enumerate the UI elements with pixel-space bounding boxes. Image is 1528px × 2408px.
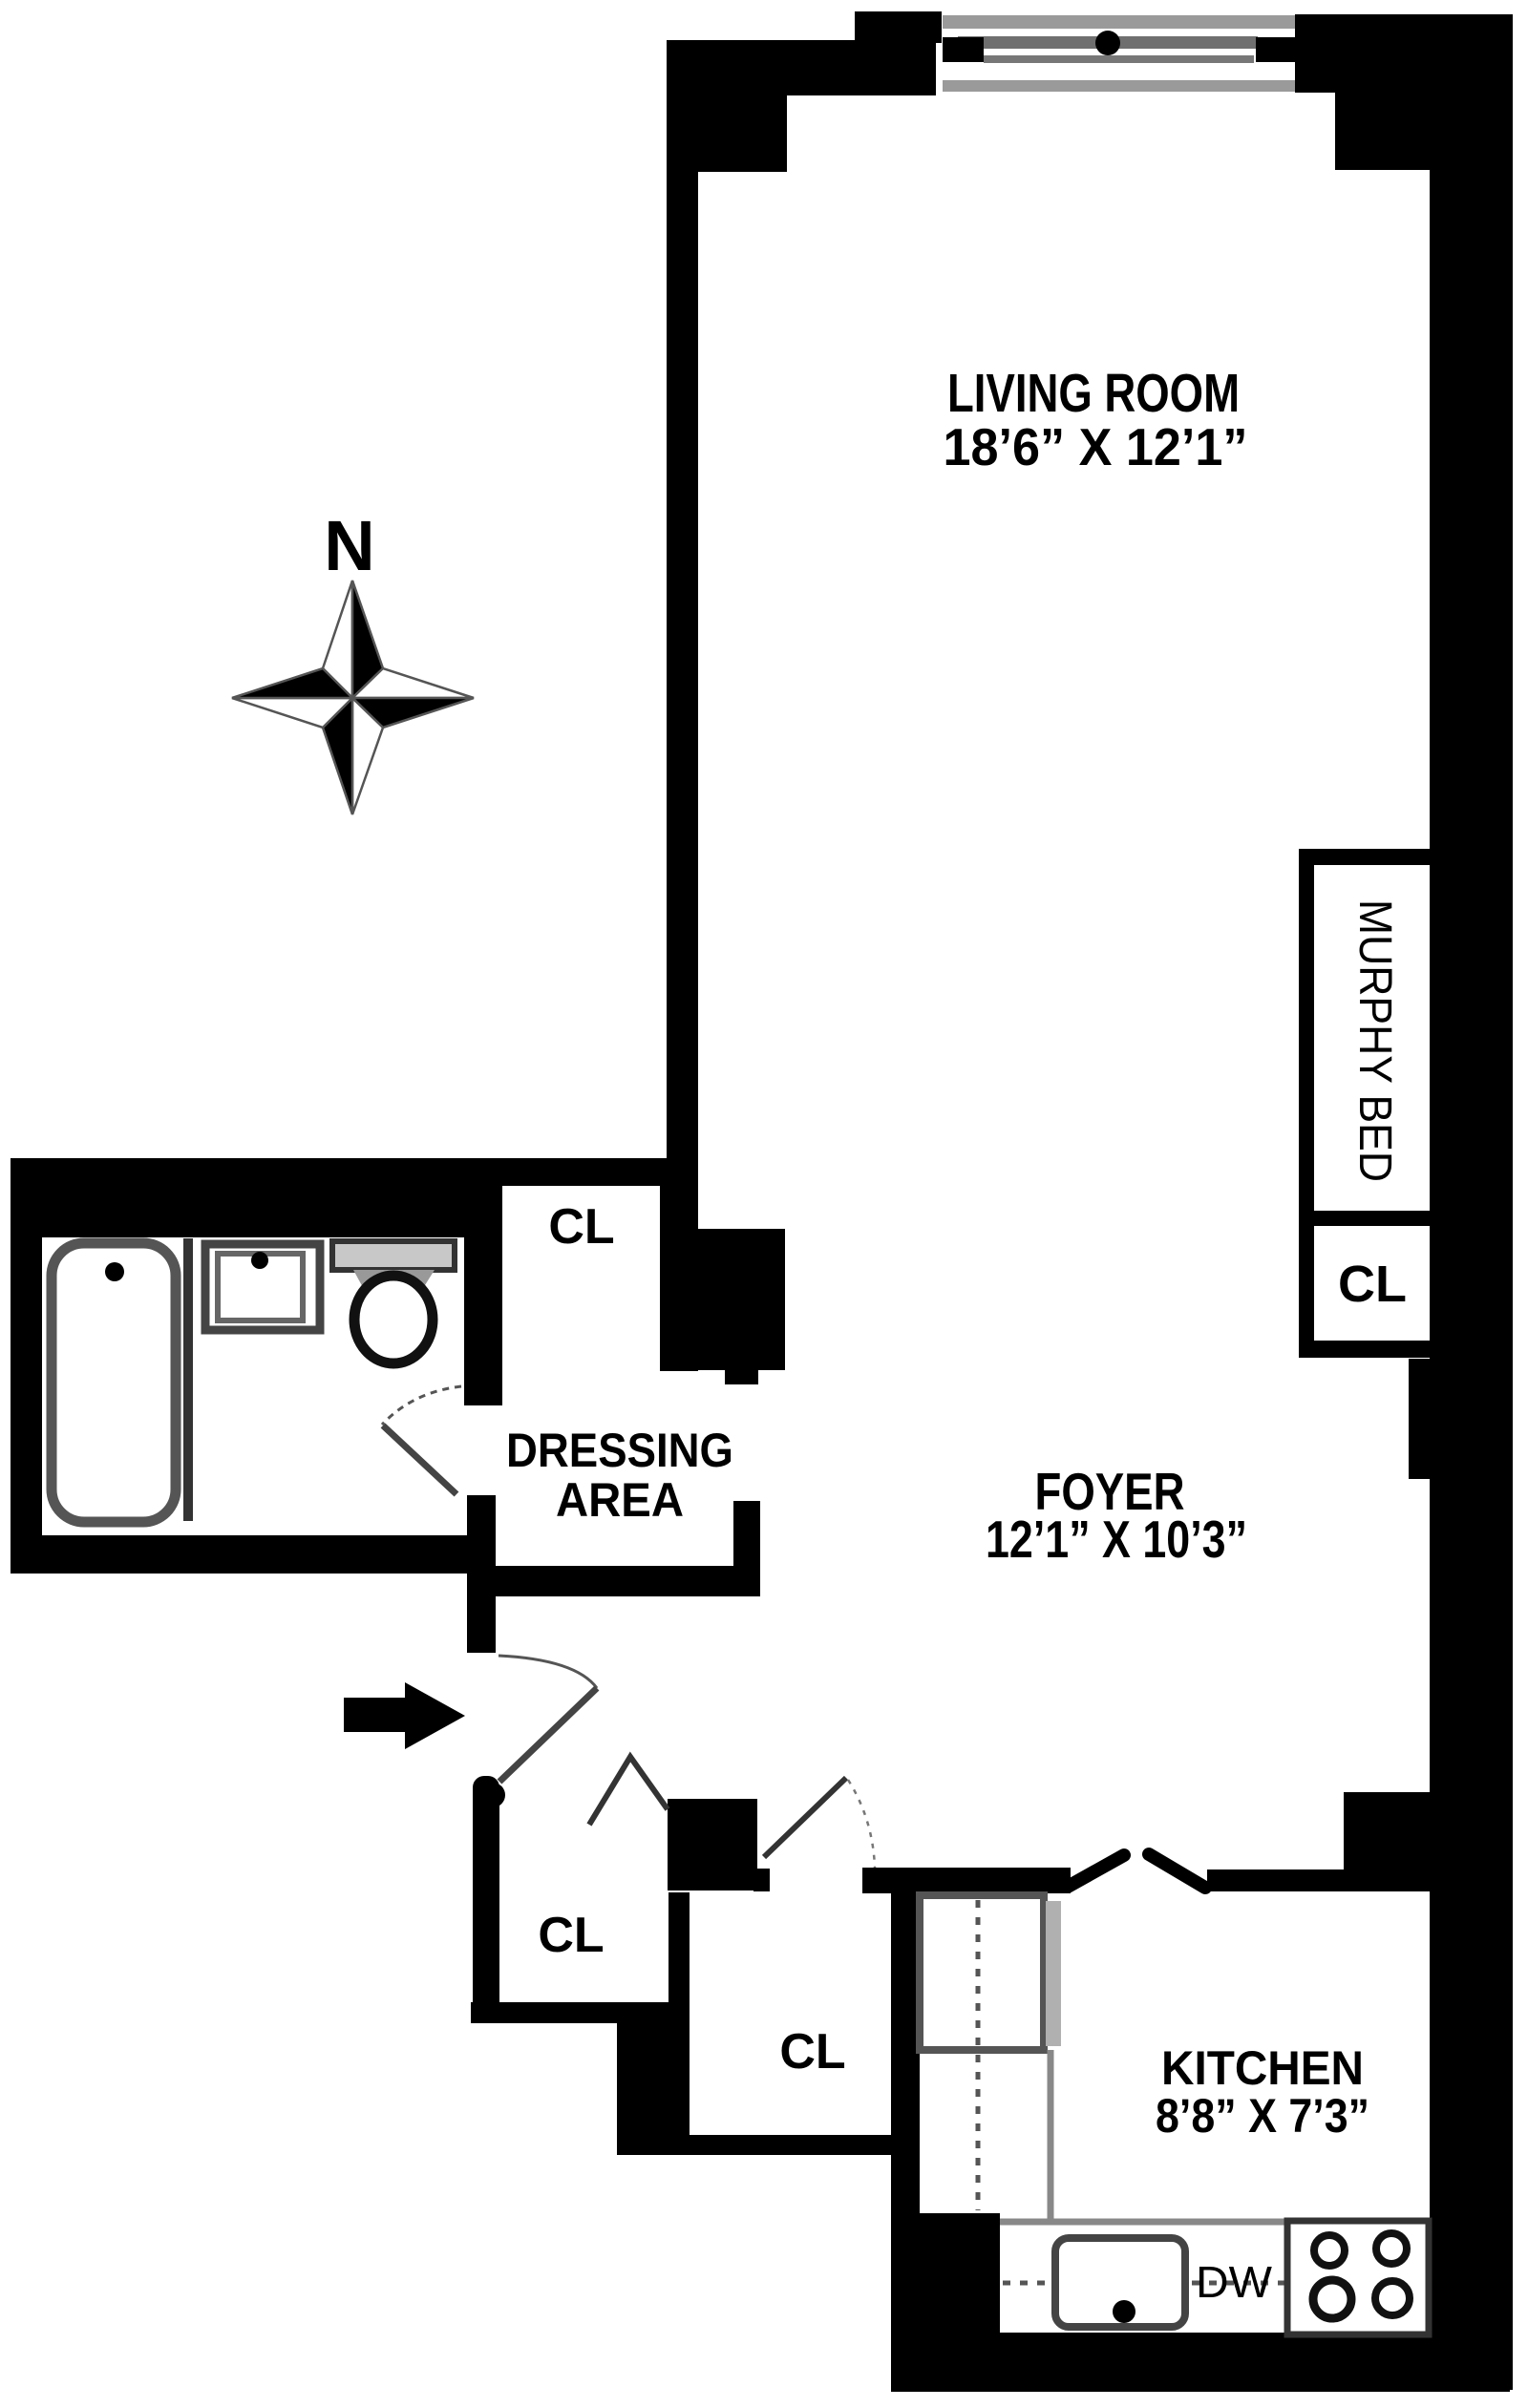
svg-text:12’1” X 10’3”: 12’1” X 10’3”	[986, 1510, 1247, 1569]
svg-text:LIVING ROOM: LIVING ROOM	[947, 363, 1240, 424]
svg-text:MURPHY BED: MURPHY BED	[1349, 899, 1400, 1182]
svg-text:CL: CL	[779, 2024, 845, 2080]
svg-text:DW: DW	[1196, 2257, 1273, 2307]
svg-text:CL: CL	[1338, 1256, 1407, 1313]
svg-text:KITCHEN: KITCHEN	[1161, 2041, 1364, 2095]
svg-text:8’8” X 7’3”: 8’8” X 7’3”	[1156, 2089, 1369, 2143]
svg-text:18’6” X 12’1”: 18’6” X 12’1”	[944, 417, 1248, 476]
svg-text:CL: CL	[538, 1908, 604, 1963]
svg-text:CL: CL	[548, 1199, 614, 1255]
svg-text:DRESSING: DRESSING	[506, 1424, 733, 1477]
svg-text:AREA: AREA	[556, 1473, 684, 1527]
svg-text:N: N	[324, 506, 374, 585]
